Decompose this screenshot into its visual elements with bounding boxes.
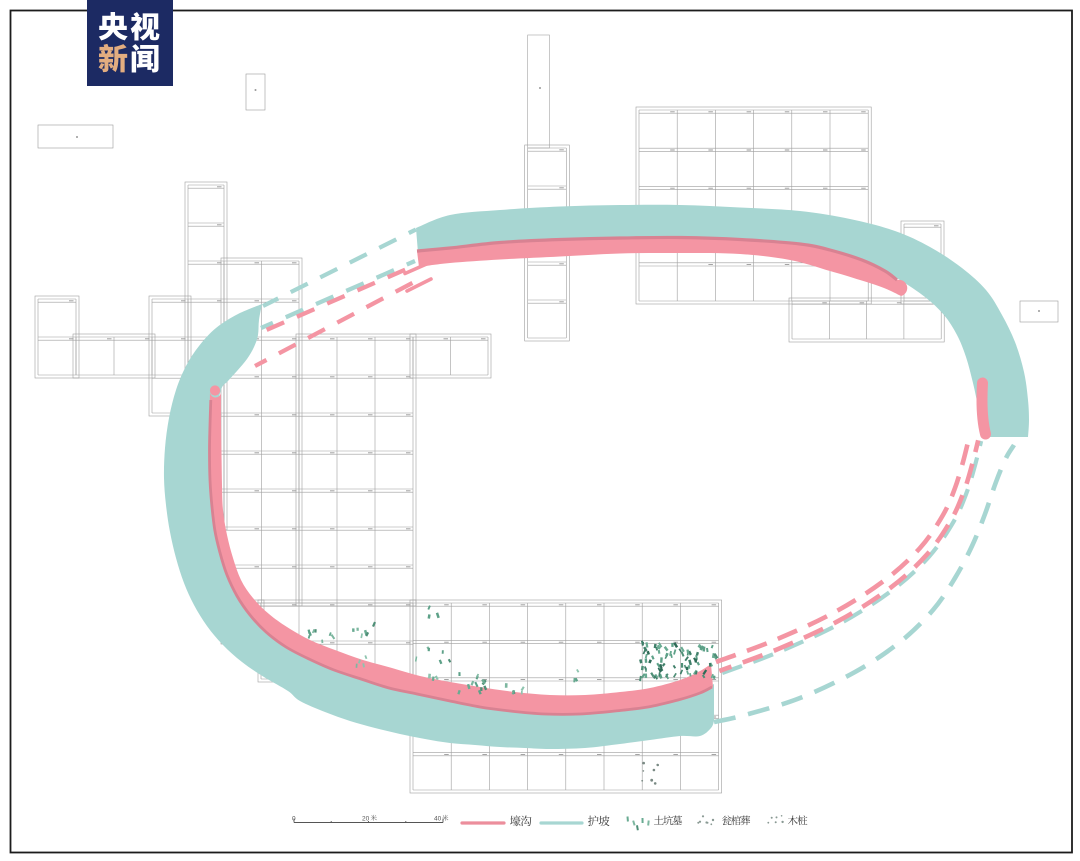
svg-text:20: 20 (362, 816, 370, 823)
svg-text:40: 40 (434, 816, 442, 823)
svg-text:0: 0 (292, 816, 296, 823)
